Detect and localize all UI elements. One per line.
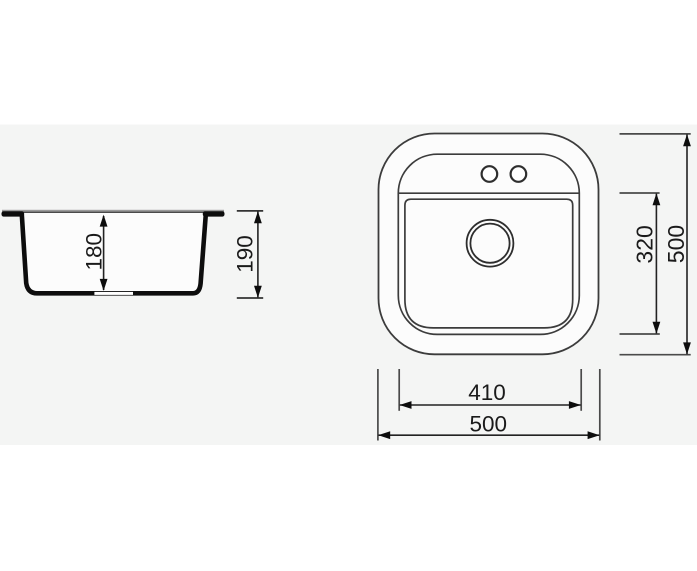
svg-text:190: 190 xyxy=(233,235,258,273)
svg-text:410: 410 xyxy=(468,380,506,405)
svg-text:320: 320 xyxy=(632,225,658,263)
svg-text:500: 500 xyxy=(470,412,508,437)
svg-text:180: 180 xyxy=(81,233,106,271)
svg-text:500: 500 xyxy=(663,225,689,263)
